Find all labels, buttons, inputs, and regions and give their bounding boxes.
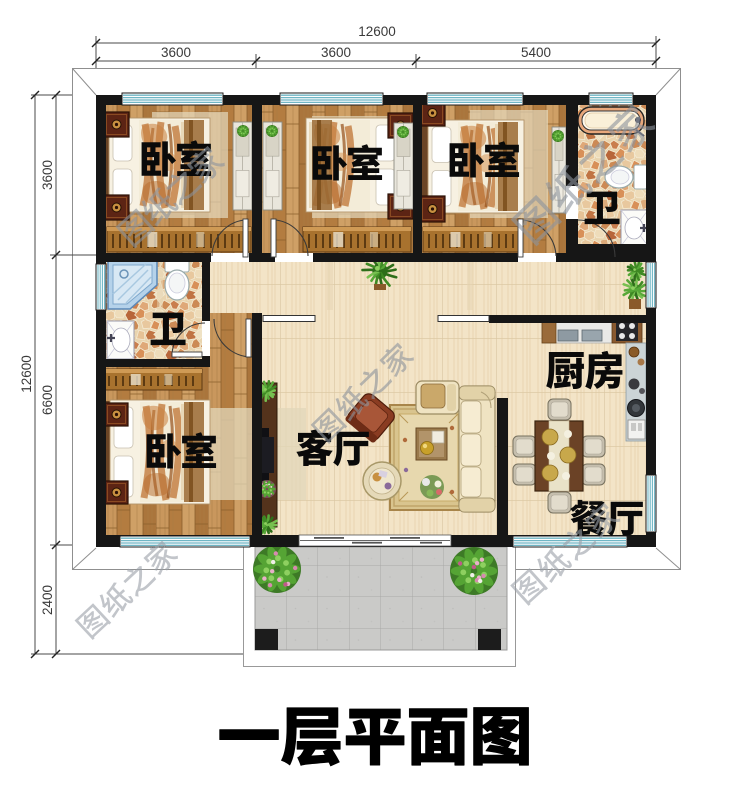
svg-text:3600: 3600 (161, 45, 191, 60)
svg-text:3600: 3600 (40, 160, 55, 190)
svg-text:6600: 6600 (40, 385, 55, 415)
svg-text:12600: 12600 (19, 355, 34, 393)
svg-text:3600: 3600 (321, 45, 351, 60)
svg-text:2400: 2400 (40, 585, 55, 615)
svg-text:12600: 12600 (358, 24, 396, 39)
svg-text:5400: 5400 (521, 45, 551, 60)
